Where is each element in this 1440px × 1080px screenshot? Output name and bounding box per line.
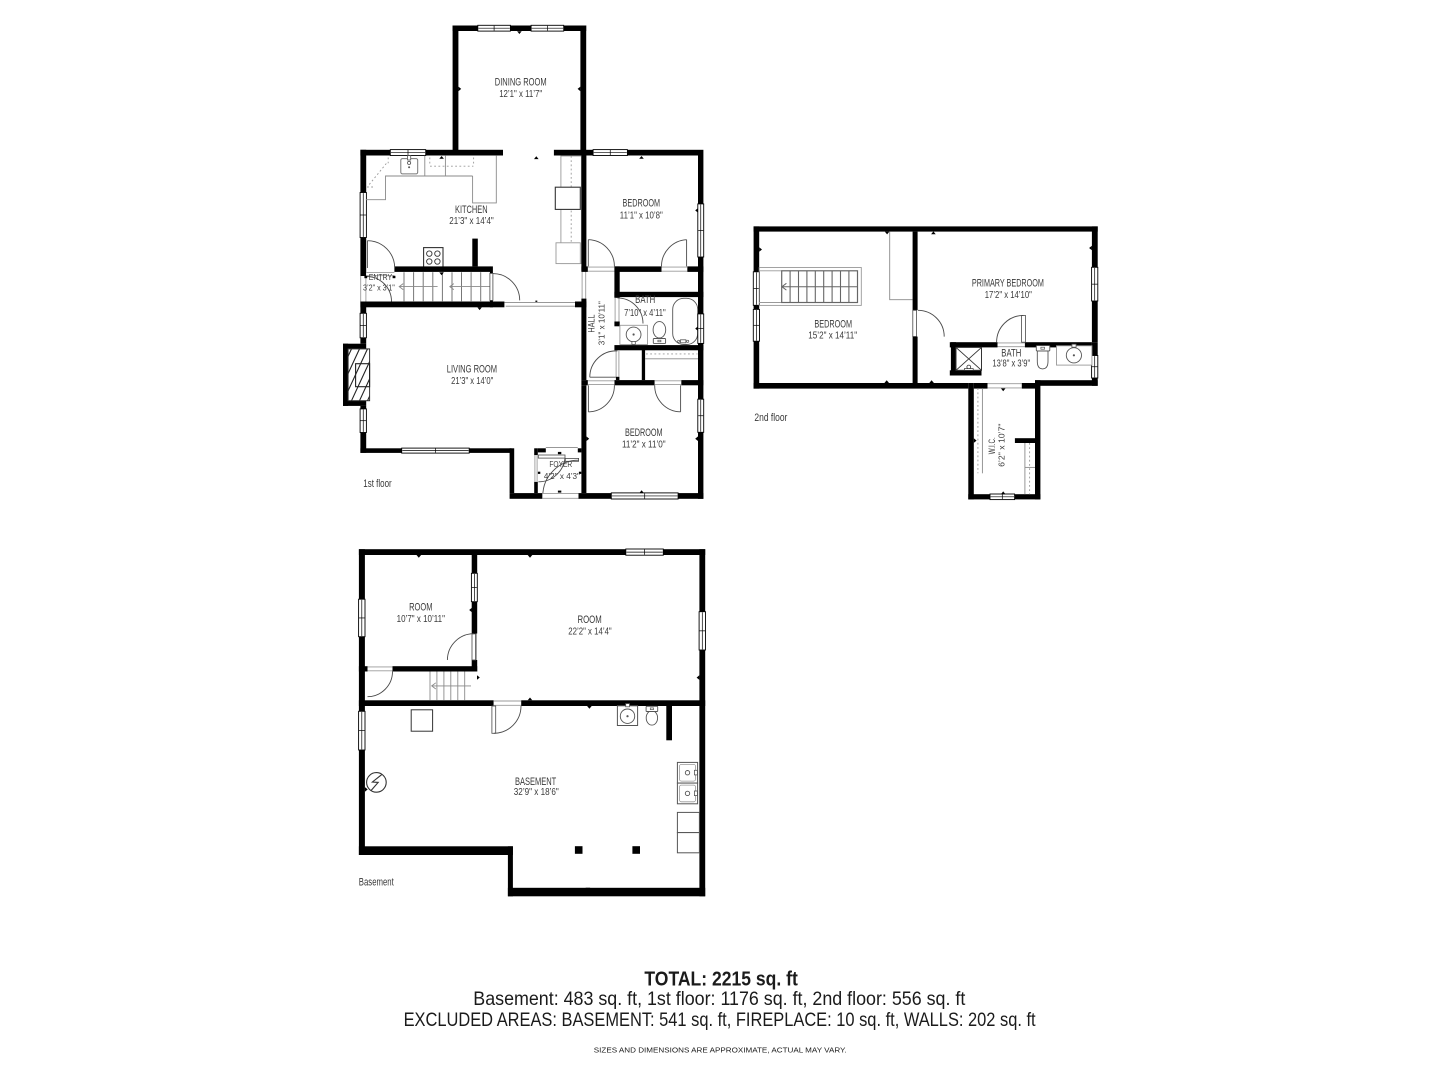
svg-text:DINING ROOM: DINING ROOM — [495, 77, 547, 89]
svg-text:EXCLUDED AREAS: BASEMENT: 541: EXCLUDED AREAS: BASEMENT: 541 sq. ft, FI… — [404, 1010, 1037, 1031]
svg-text:ROOM: ROOM — [409, 602, 432, 614]
svg-text:22’2" x 14’4": 22’2" x 14’4" — [568, 626, 612, 637]
svg-text:Basement: Basement — [359, 876, 394, 888]
svg-text:FOYER: FOYER — [549, 459, 572, 469]
svg-text:10’7" x 10’11": 10’7" x 10’11" — [397, 614, 446, 625]
svg-text:7’10" x 4’11": 7’10" x 4’11" — [624, 308, 666, 319]
svg-text:BEDROOM: BEDROOM — [623, 198, 661, 210]
svg-text:KITCHEN: KITCHEN — [455, 204, 488, 216]
svg-text:17’2" x 14’10": 17’2" x 14’10" — [985, 290, 1033, 301]
svg-text:6’2" x 10’7": 6’2" x 10’7" — [997, 424, 1007, 467]
svg-text:ROOM: ROOM — [578, 614, 602, 626]
svg-text:BASEMENT: BASEMENT — [515, 776, 556, 788]
svg-text:SIZES AND DIMENSIONS ARE APPRO: SIZES AND DIMENSIONS ARE APPROXIMATE, AC… — [594, 1046, 847, 1055]
svg-text:PRIMARY BEDROOM: PRIMARY BEDROOM — [972, 278, 1044, 290]
svg-text:BATH: BATH — [635, 294, 655, 306]
svg-text:11’2" x 11’0": 11’2" x 11’0" — [622, 439, 666, 450]
svg-text:4’2" x 4’3": 4’2" x 4’3" — [544, 472, 580, 481]
svg-text:21’3" x 14’4": 21’3" x 14’4" — [449, 216, 494, 227]
svg-text:32’9" x 18’6": 32’9" x 18’6" — [514, 787, 559, 798]
svg-text:13’8" x 3’9": 13’8" x 3’9" — [992, 358, 1030, 369]
svg-text:Basement: 483 sq. ft, 1st floo: Basement: 483 sq. ft, 1st floor: 1176 sq… — [473, 989, 966, 1010]
svg-text:LIVING ROOM: LIVING ROOM — [447, 363, 497, 375]
svg-text:21’3" x 14’0": 21’3" x 14’0" — [451, 376, 494, 387]
svg-text:1st floor: 1st floor — [363, 478, 392, 490]
svg-text:11’1" x 10’8": 11’1" x 10’8" — [620, 210, 663, 221]
svg-text:12’1" x 11’7": 12’1" x 11’7" — [499, 89, 542, 100]
svg-text:15’2" x 14’11": 15’2" x 14’11" — [808, 330, 857, 341]
svg-text:TOTAL: 2215 sq. ft: TOTAL: 2215 sq. ft — [644, 967, 798, 990]
svg-text:3’1" x 10’11": 3’1" x 10’11" — [597, 301, 607, 345]
svg-text:ENTRY: ENTRY — [369, 273, 393, 282]
svg-text:3’2" x 3’1": 3’2" x 3’1" — [363, 283, 395, 292]
svg-text:BEDROOM: BEDROOM — [625, 427, 663, 439]
svg-text:2nd floor: 2nd floor — [754, 412, 787, 424]
svg-text:BEDROOM: BEDROOM — [814, 318, 852, 330]
